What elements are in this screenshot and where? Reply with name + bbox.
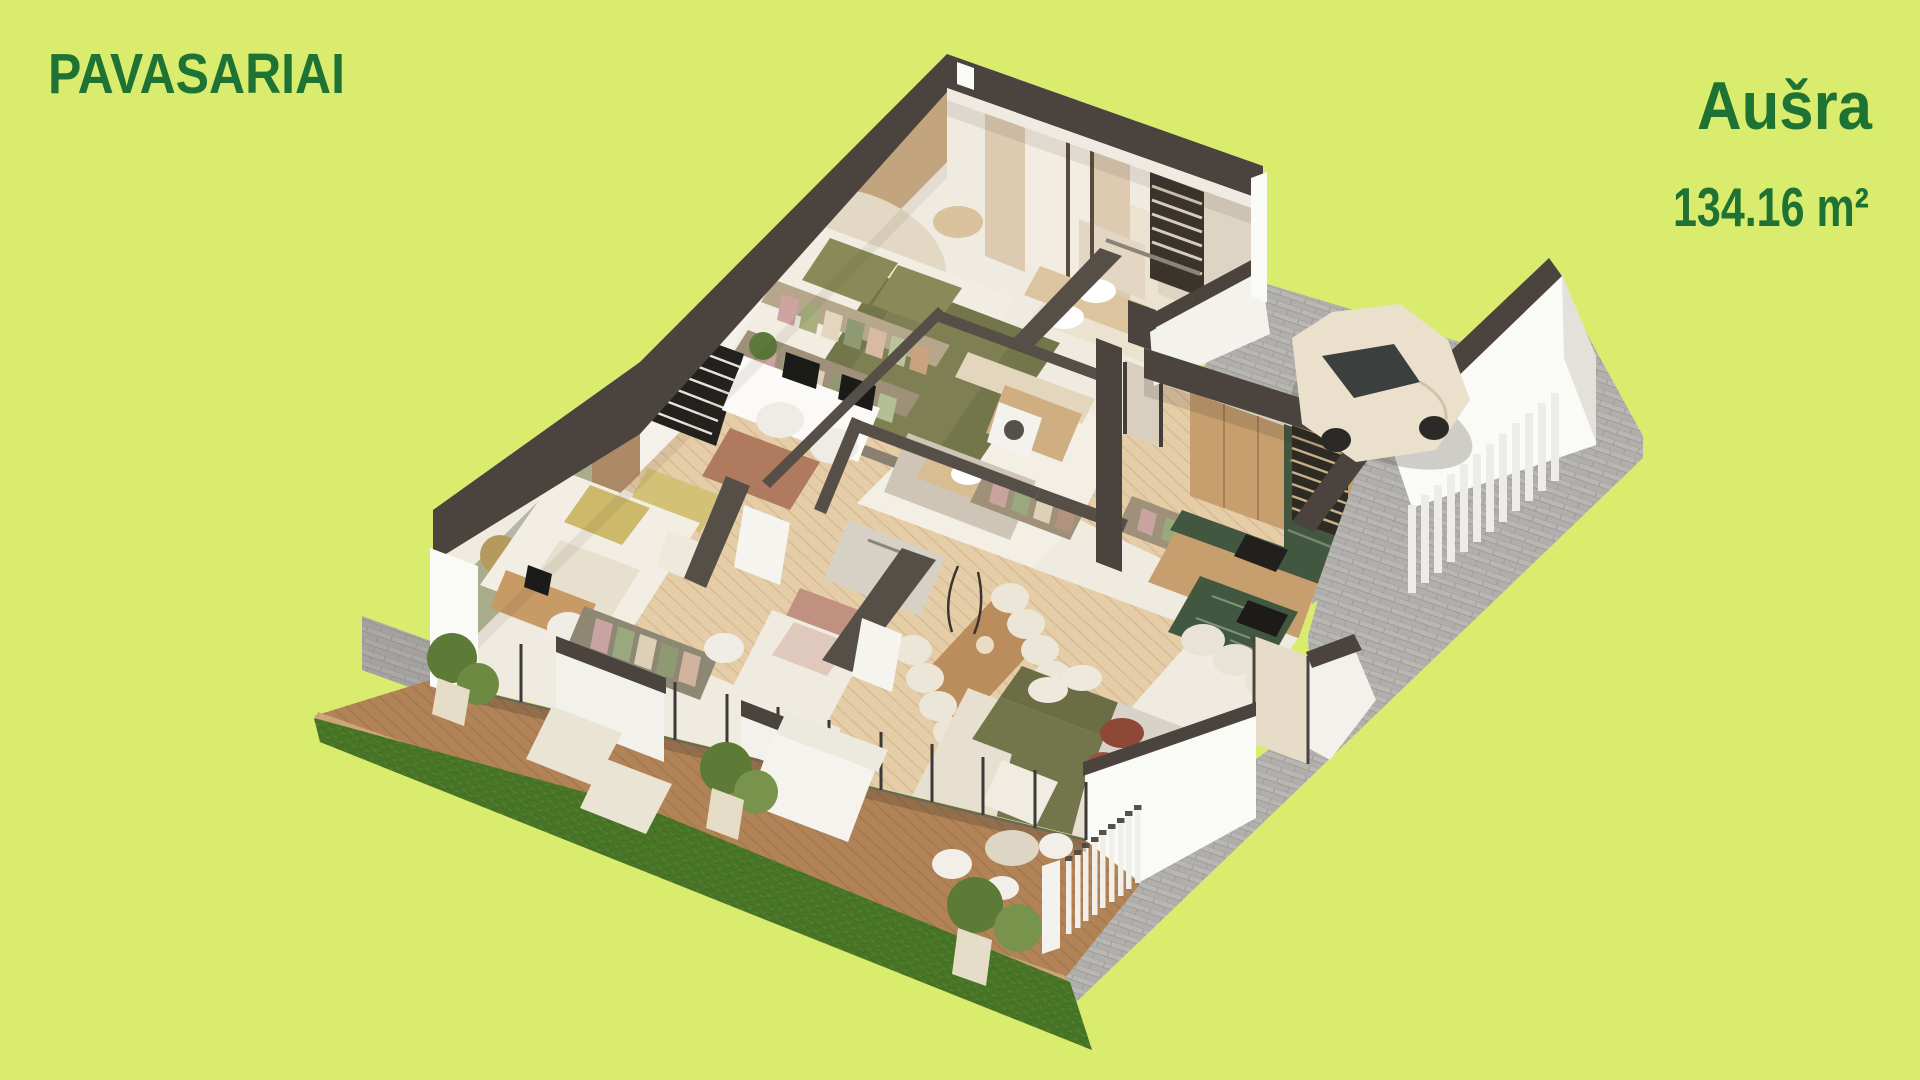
svg-text:134.16 m²: 134.16 m² bbox=[1673, 176, 1869, 238]
svg-text:Aušra: Aušra bbox=[1697, 68, 1873, 144]
svg-text:PAVASARIAI: PAVASARIAI bbox=[48, 42, 345, 106]
